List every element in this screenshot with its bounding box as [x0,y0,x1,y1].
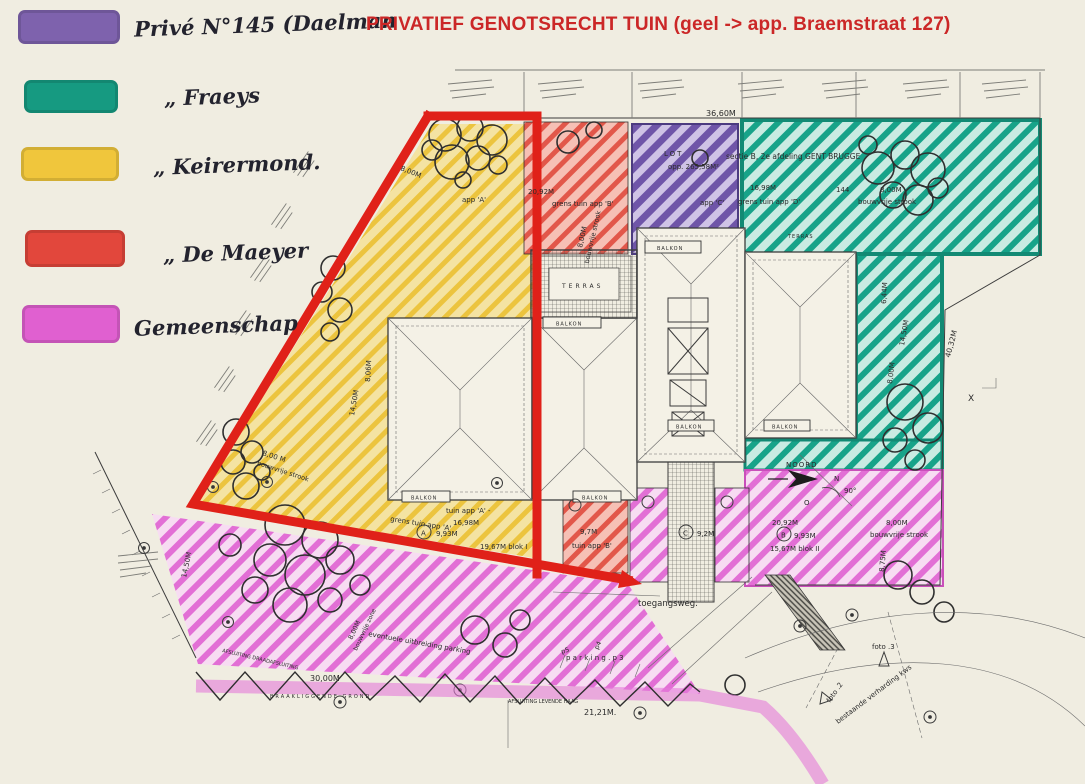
site-plan-svg: TERRAS BALKON BALKON BALKON BALKON BALKO… [0,0,1085,784]
dim-2121: 21,21M. [584,708,616,717]
terras-small: TERRAS [787,234,814,240]
m-993: 9,93M [794,532,816,540]
haag: AFSLUITING LEVENDE HAAG [508,699,578,705]
m-800: 8,00M [886,519,908,527]
legend-label: „ De Maeyer [163,237,309,267]
legend-swatch-red [25,230,125,267]
app-c: app 'C' [700,199,724,207]
foto-2: foto .2 [825,681,845,704]
red-2092: 20,92M [528,188,554,196]
legend-swatch-purple [18,10,120,44]
svg-text:BALKON: BALKON [556,322,582,328]
dim-3660: 36,60M [706,109,736,118]
t-644: 6,44M [880,282,889,304]
compass-o: O [804,499,810,507]
blok-ii: 15,67M blok II [770,545,819,553]
foto-3: foto .3 [872,643,895,651]
svg-text:40,32M: 40,32M [943,329,959,358]
parking-p3: p a r k i n g . p 3 [566,654,624,662]
legend-item-prive: Privé N°145 (Daelman [18,10,397,44]
owner-annotations-top [448,70,1045,118]
verharding: bestaande verharding kws [834,663,913,725]
teal-800: 8,00M [880,186,902,194]
legend-item-demaeyer: „ De Maeyer [25,230,308,267]
sectie: sectie B, 2e afdeling GENT BRUGGE [726,152,861,161]
legend-swatch-magenta [22,305,120,343]
r-tuin-b: tuin app 'B' [572,542,612,550]
svg-text:BALKON: BALKON [411,496,437,502]
dim-3000: 30,00M [310,674,340,683]
teal-144: 144 [836,186,850,194]
tuin-a: tuin app 'A' - [446,507,491,515]
legend-label: „ Fraeys [164,82,261,110]
svg-text:A: A [421,530,426,538]
svg-text:BALKON: BALKON [676,425,702,431]
scanned-site-plan: TERRAS BALKON BALKON BALKON BALKON BALKO… [0,0,1085,784]
r-97: 9,7M [580,528,597,536]
toegangsweg: toegangsweg. [638,599,698,609]
svg-text:foto .2: foto .2 [825,681,845,704]
legend-label: „ Keirermond. [153,149,321,180]
svg-text:BALKON: BALKON [657,246,683,252]
a-1698: 16,98M [453,519,479,527]
legend-item-gemeenschap: Gemeenschap [22,305,298,343]
hedge-band [196,672,823,784]
c-92: 9,2M [697,530,714,538]
legend-item-fraeys: „ Fraeys [24,80,260,113]
svg-text:8,06M: 8,06M [364,360,373,382]
compass-n: N [834,475,839,483]
svg-text:C: C [683,530,688,538]
svg-text:BALKON: BALKON [582,496,608,502]
page-title: PRIVATIEF GENOTSRECHT TUIN (geel -> app.… [366,14,951,36]
legend-swatch-teal [24,80,118,113]
noord: NOORD [786,461,818,469]
compass-90: 90° [844,487,856,495]
x-marker: X [968,394,974,404]
teal-1698: 16,98M [750,184,776,192]
svg-text:BALKON: BALKON [772,425,798,431]
svg-text:6,44M: 6,44M [880,282,889,304]
x-bracket [982,378,996,388]
opp: opp. 265,58M² [668,163,719,171]
m-bouw: bouwvrije strook [870,531,929,539]
t-4032: 40,32M [943,329,959,358]
lot: LOT [664,150,683,158]
blok-i: 19,67M blok I [480,543,527,551]
teal-bouw: bouwvrije strook [858,198,917,206]
svg-text:B: B [781,532,786,540]
teal-grens: grens tuin app 'D' [738,198,800,206]
terras-label: TERRAS [561,283,603,290]
legend-swatch-yellow [21,147,119,181]
y-806: 8,06M [364,360,373,382]
red-grens: grens tuin app 'B' [552,200,614,208]
app-a: app 'A' [462,196,486,204]
legend-label: Privé N°145 (Daelman [134,7,397,41]
m-2092: 20,92M [772,519,798,527]
braakliggende-grond: BRAAKLIGGENDE GROND [270,694,371,700]
a-993: 9,93M [436,530,458,538]
svg-text:bestaande verharding kws: bestaande verharding kws [834,663,913,725]
legend-label: Gemeenschap [134,310,298,341]
legend-item-keirermond: „ Keirermond. [21,147,321,181]
